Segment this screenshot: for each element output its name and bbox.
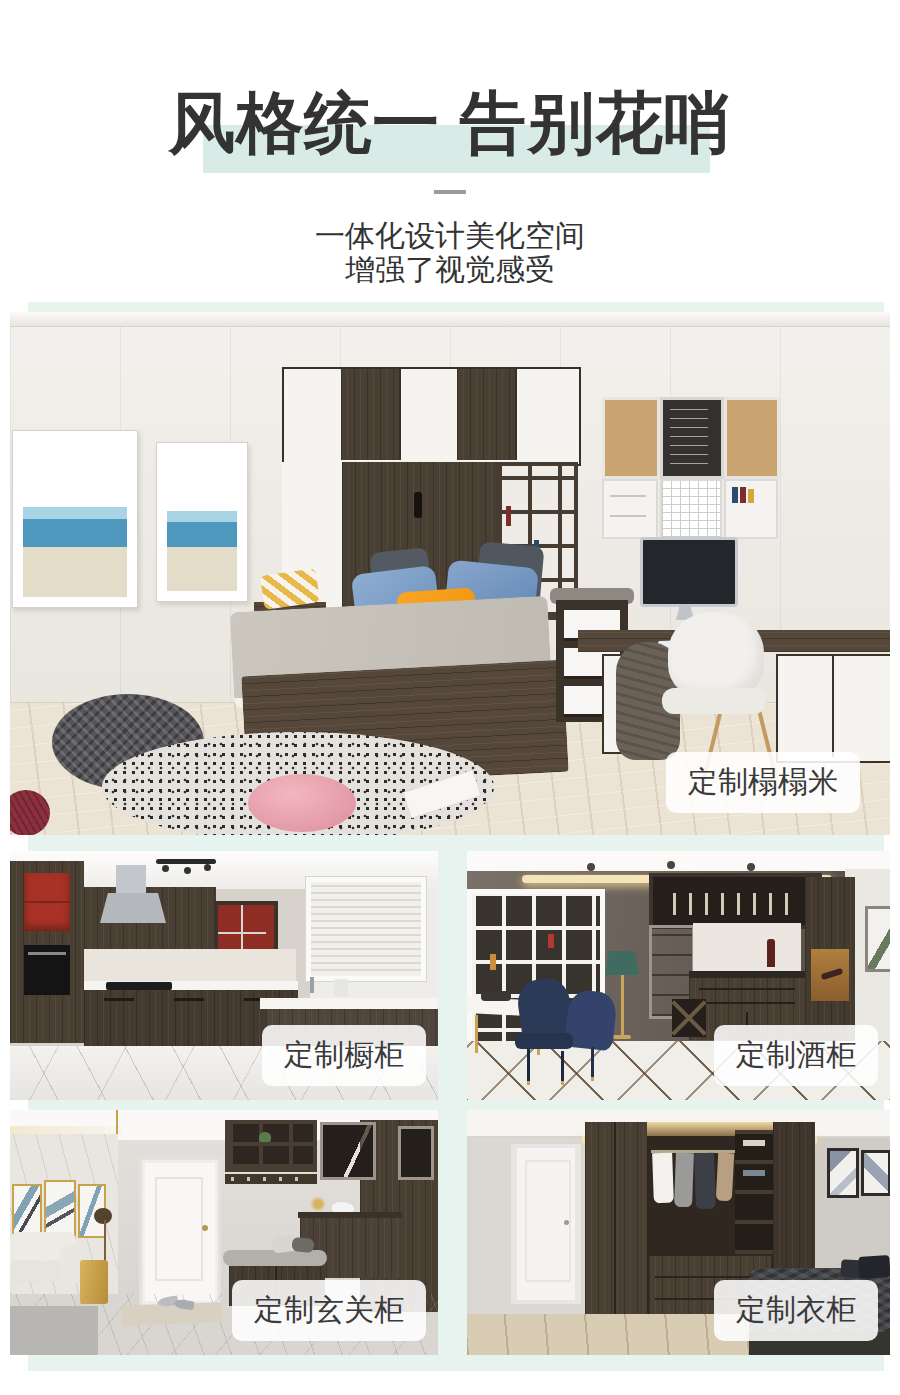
red-display-niche [24, 873, 70, 931]
photo-label-wine: 定制酒柜 [714, 1025, 878, 1086]
window-with-blinds [306, 877, 426, 981]
chair-seat [515, 1033, 573, 1049]
poster-art [23, 441, 127, 597]
photo-label-tatami: 定制榻榻米 [666, 752, 860, 813]
gold-starburst-decor [310, 1196, 326, 1212]
chair-leg [591, 1047, 594, 1081]
photo-entryway: 定制玄关柜 [10, 1110, 438, 1355]
hanging-shirt [652, 1153, 674, 1204]
drawer-seam [699, 988, 795, 990]
spotlight [587, 863, 595, 871]
overhead-cabinets [282, 367, 581, 466]
chair-back [668, 612, 764, 700]
backlit-bottle [548, 934, 554, 948]
backlit-niche [811, 949, 849, 1001]
gold-framed-art [44, 1180, 76, 1240]
cabinet-hardware [414, 492, 422, 518]
page-title: 风格统一 告别花哨 [0, 84, 900, 161]
bed-pillow [858, 1255, 890, 1279]
door-panel [155, 1177, 203, 1281]
peninsula-countertop [260, 998, 438, 1009]
doormat [122, 1302, 223, 1325]
hanging-jacket [694, 1153, 716, 1210]
folded-clothes [743, 1170, 765, 1176]
chair-leg [527, 1049, 530, 1085]
framed-art [865, 906, 890, 972]
faucet [310, 977, 314, 993]
top-wine-shelf [649, 873, 822, 929]
desk-side-cabinet [776, 654, 890, 763]
door-seam [832, 656, 834, 757]
poster-art [167, 453, 237, 591]
black-framed-art [827, 1148, 859, 1198]
bench-pillow [291, 1237, 314, 1253]
floor-lamp-pole [621, 975, 624, 1037]
chair-leg [561, 1051, 564, 1085]
photo-wardrobe: 定制衣柜 [467, 1110, 890, 1355]
book [740, 487, 746, 503]
glass-front-cabinet [398, 1126, 434, 1180]
framed-sea-poster-left [12, 430, 138, 608]
chalk-text-lines [670, 408, 708, 464]
shelf-column [735, 1130, 773, 1254]
black-framed-art [861, 1150, 890, 1196]
glass-front-cabinet [320, 1122, 376, 1180]
tatami-room-scene: 定制榻榻米 [10, 312, 890, 835]
side-column [805, 877, 855, 1049]
sofa-arm [60, 1244, 78, 1286]
white-entry-door [142, 1160, 218, 1304]
promo-page: { "header": { "title": "风格统一 告别花哨", "sub… [0, 0, 900, 1395]
photo-label-entry: 定制玄关柜 [232, 1280, 426, 1341]
hanging-coat [674, 1153, 694, 1208]
chalkboard [660, 397, 724, 479]
wall-calendar [660, 479, 722, 539]
framed-sea-poster-right [156, 442, 248, 602]
overhead-cubbies [225, 1120, 317, 1172]
shelf [24, 901, 70, 903]
ceiling [10, 312, 890, 327]
subtitle-line-2: 增强了视觉感受 [0, 250, 900, 291]
marble-backsplash [693, 923, 801, 971]
spotlight [184, 867, 191, 874]
wall-file-holder [602, 479, 658, 539]
photo-kitchen: 定制橱柜 [10, 851, 438, 1100]
door-seam [399, 369, 401, 460]
cubby-grid [229, 1124, 313, 1168]
built-in-oven [24, 945, 70, 995]
oven-handle [28, 952, 66, 955]
mullion [218, 932, 266, 934]
wine-room-scene: 定制酒柜 [467, 851, 890, 1100]
file-slot [610, 515, 646, 517]
door-knob [202, 1225, 208, 1231]
kitchen-scene: 定制橱柜 [10, 851, 438, 1100]
file-slot [610, 495, 646, 497]
wall-shelf [724, 479, 778, 539]
sofa-cushion [10, 1260, 44, 1282]
spotlight [162, 865, 169, 872]
wall-organizer-set [602, 397, 774, 535]
desktop-monitor [640, 537, 738, 607]
wood-cabinet-door [457, 369, 515, 460]
title-divider [434, 190, 466, 194]
wardrobe-doors [585, 1122, 647, 1322]
table-decor [481, 991, 511, 1001]
door-seam [515, 369, 517, 460]
door-seam [614, 1122, 616, 1322]
drawer-handle [174, 998, 204, 1001]
cork-board [602, 397, 660, 479]
wardrobe-scene: 定制衣柜 [467, 1110, 890, 1355]
floor-lamp-shade [605, 951, 639, 975]
arc-lamp-head [94, 1208, 112, 1224]
drawer-handle [104, 998, 134, 1001]
range-hood [100, 893, 166, 923]
counter-top [689, 971, 805, 978]
backsplash [84, 949, 296, 983]
spotlight [204, 864, 211, 871]
table-leg-gold [475, 1015, 478, 1053]
potted-plant [259, 1132, 271, 1142]
photo-label-wardrobe: 定制衣柜 [714, 1280, 878, 1341]
wood-cabinet-door [341, 369, 399, 460]
photo-wine-cabinet: 定制酒柜 [467, 851, 890, 1100]
area-rug [10, 1306, 98, 1355]
spotlight [747, 863, 755, 871]
door-knob [564, 1220, 569, 1225]
hooks [231, 1177, 311, 1181]
pink-cushion [248, 774, 356, 832]
hood-chimney [116, 865, 146, 893]
vase [334, 979, 348, 997]
photo-label-kitchen: 定制橱柜 [262, 1025, 426, 1086]
book [506, 506, 511, 526]
cork-board [724, 397, 780, 479]
book [732, 487, 738, 503]
white-door [517, 1148, 575, 1300]
drawer-seam [699, 1002, 795, 1004]
photo-tatami-room: 定制榻榻米 [10, 312, 890, 835]
entryway-scene: 定制玄关柜 [10, 1110, 438, 1355]
diamond-wine-rack [672, 999, 706, 1037]
displayed-bottle [821, 968, 844, 981]
wine-bottle [767, 939, 775, 967]
coat-hook-rail [225, 1174, 317, 1184]
backlit-bottle [490, 954, 496, 970]
tall-cabinet [10, 861, 84, 1043]
book [748, 489, 754, 503]
gas-hob [106, 982, 172, 990]
chair-seat [662, 688, 766, 714]
hanging-coat [716, 1153, 734, 1202]
folded-clothes [743, 1140, 765, 1146]
wine-bottles-row [673, 893, 793, 915]
floor-lamp-base [613, 1035, 631, 1039]
spotlight [667, 861, 675, 869]
